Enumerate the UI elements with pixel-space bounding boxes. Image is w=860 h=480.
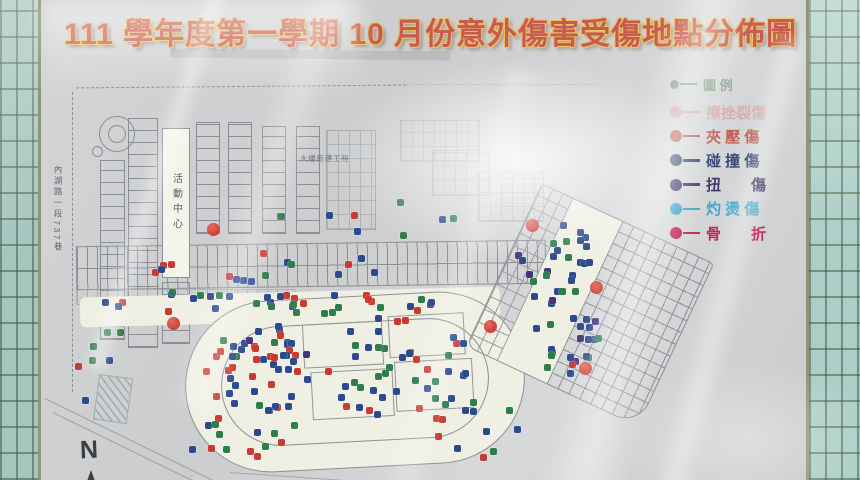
injury-dot-b [115,303,122,310]
injury-dot-b [229,353,236,360]
injury-dot-b [288,393,295,400]
injury-dot-b [358,255,365,262]
legend-line [683,135,700,138]
injury-dot-b [158,266,165,273]
injury-dot-b [483,428,490,435]
injury-dot-b [338,394,345,401]
injury-dot-b [277,293,284,300]
injury-dot-b [227,375,234,382]
injury-dot-g [335,304,342,311]
injury-dot-b [374,411,381,418]
injury-dot-r [325,368,332,375]
injury-dot-b [232,382,239,389]
legend-line [683,183,700,186]
injury-dot-b [248,278,255,285]
injury-dot-b [577,323,584,330]
injury-dot-g [445,352,452,359]
injury-dot-b [254,429,261,436]
classroom-strip [228,122,252,234]
injury-dot-b [275,366,282,373]
legend: 圖 例 擦挫裂傷夾 壓 傷碰 撞 傷扭 傷灼 燙 傷骨 折 [670,70,810,250]
legend-color-dot-icon [670,179,682,191]
large-red-marker [579,362,592,375]
injury-dot-g [565,254,572,261]
injury-dot-b [371,269,378,276]
injury-dot-b [326,212,333,219]
injury-dot-r [278,439,285,446]
injury-dot-g [89,357,96,364]
injury-dot-r [226,273,233,280]
injury-dot-r [366,407,373,414]
injury-dot-p [526,271,533,278]
legend-item-label: 灼 燙 傷 [706,198,759,219]
campus-boundary-top-faint [406,84,596,85]
injury-dot-g [216,431,223,438]
injury-dot-b [567,370,574,377]
legend-item-label: 擦挫裂傷 [706,102,766,123]
injury-dot-g [432,378,439,385]
photo-of-campus-injury-map-poster: 111 學年度第一學期 10 月份意外傷害受傷地點分佈圖 活動中心 大樓新建工程 [0,0,860,480]
injury-dot-b [450,334,457,341]
injury-dot-b [531,293,538,300]
injury-dot-r [343,403,350,410]
legend-item-label: 扭 傷 [706,174,766,195]
injury-dot-b [406,350,413,357]
legend-header: 圖 例 [670,76,733,92]
injury-dot-g [256,402,263,409]
injury-dot-b [231,400,238,407]
injury-dot-r [217,348,224,355]
injury-dot-g [90,343,97,350]
injury-dot-g [104,329,111,336]
legend-line [683,111,700,114]
injury-dot-r [414,307,421,314]
street-name-label: 內湖路一段737巷 [50,165,63,314]
injury-dot-b [260,356,267,363]
legend-item: 碰 撞 傷 [670,152,759,168]
injury-dot-g [357,384,364,391]
large-red-marker [590,281,603,294]
injury-dot-b [550,253,557,260]
legend-item-label: 夾 壓 傷 [706,126,759,147]
injury-dot-b [428,299,435,306]
plaza-circle-small [92,146,103,157]
injury-dot-r [569,361,576,368]
large-red-marker [484,320,497,333]
injury-dot-b [375,328,382,335]
injury-dot-b [424,385,431,392]
injury-dot-b [356,404,363,411]
injury-dot-b [583,243,590,250]
injury-dot-b [290,358,297,365]
injury-dot-b [285,403,292,410]
injury-dot-b [189,446,196,453]
injury-dot-r [480,454,487,461]
injury-dot-b [280,352,287,359]
injury-dot-b [533,325,540,332]
injury-dot-b [375,315,382,322]
injury-dot-b [439,216,446,223]
injury-dot-g [595,335,602,342]
injury-dot-b [470,408,477,415]
injury-dot-b [568,277,575,284]
injury-dot-r [165,308,172,315]
injury-dot-r [271,354,278,361]
injury-dot-g [559,288,566,295]
injury-dot-r [351,212,358,219]
main-classroom-row [76,240,547,291]
injury-dot-g [547,321,554,328]
injury-dot-r [424,366,431,373]
legend-color-dot-icon [670,130,682,142]
injury-dot-g [382,370,389,377]
legend-item: 夾 壓 傷 [670,128,759,144]
injury-dot-g [212,421,219,428]
injury-dot-p [592,318,599,325]
injury-dot-b [335,271,342,278]
injury-dot-g [412,377,419,384]
injury-dot-g [490,448,497,455]
ramp-hatched [93,374,133,424]
injury-dot-b [586,324,593,331]
injury-dot-p [577,335,584,342]
injury-dot-r [268,381,275,388]
injury-dot-g [271,430,278,437]
injury-dot-b [560,222,567,229]
injury-dot-b [230,343,237,350]
injury-dot-r [294,368,301,375]
injury-dot-g [550,240,557,247]
injury-dot-b [352,353,359,360]
injury-dot-r [247,448,254,455]
injury-dot-b [207,293,214,300]
injury-dot-b [106,357,113,364]
injury-dot-r [75,363,82,370]
legend-color-dot-icon [670,154,682,166]
injury-dot-g [253,300,260,307]
injury-dot-b [445,368,452,375]
injury-dot-b [233,276,240,283]
injury-dot-r [416,405,423,412]
injury-dot-g [169,289,176,296]
legend-item-label: 骨 折 [706,223,766,244]
legend-line [683,232,700,235]
injury-dot-r [254,453,261,460]
injury-dot-b [205,422,212,429]
construction-note: 大樓新建工程 [300,152,350,163]
injury-dot-g [262,443,269,450]
injury-dot-r [203,368,210,375]
injury-dot-r [413,356,420,363]
injury-dot-b [342,383,349,390]
legend-color-dot-icon [670,106,682,118]
injury-dot-g [400,232,407,239]
injury-dot-g [293,309,300,316]
injury-dot-b [462,370,469,377]
injury-dot-g [548,352,555,359]
injury-dot-b [331,292,338,299]
injury-dot-b [460,340,467,347]
injury-dot-r [253,356,260,363]
injury-dot-g [375,344,382,351]
injury-dot-b [264,294,271,301]
injury-dot-b [570,315,577,322]
injury-dot-g [397,199,404,206]
injury-dot-b [586,259,593,266]
injury-dot-b [275,323,282,330]
injury-dot-b [347,328,354,335]
injury-dot-g [321,310,328,317]
injury-dot-b [585,336,592,343]
injury-dot-r [402,317,409,324]
campus-boundary-left [72,92,73,392]
north-label: N [79,436,98,466]
injury-dot-p [246,337,253,344]
legend-header-line [680,83,697,86]
injury-dot-b [567,354,574,361]
injury-dot-r [208,445,215,452]
injury-dot-r [365,296,372,303]
injury-dot-r [345,261,352,268]
classroom-strip [196,122,220,234]
injury-dot-b [226,293,233,300]
injury-dot-r [439,416,446,423]
injury-dot-b [583,316,590,323]
injury-dot-g [277,213,284,220]
poster-title: 111 學年度第一學期 10 月份意外傷害受傷地點分佈圖 [64,9,804,53]
injury-dot-b [288,340,295,347]
injury-dot-g [377,304,384,311]
injury-dot-g [220,337,227,344]
injury-dot-g [197,292,204,299]
injury-dot-b [354,228,361,235]
injury-dot-b [102,299,109,306]
legend-item: 骨 折 [670,225,766,241]
injury-dot-b [514,426,521,433]
injury-dot-g [351,379,358,386]
injury-dot-r [213,393,220,400]
injury-dot-g [262,272,269,279]
injury-dot-g [290,301,297,308]
injury-dot-r [252,345,259,352]
injury-dot-b [370,387,377,394]
injury-dot-g [117,329,124,336]
legend-item: 灼 燙 傷 [670,201,759,217]
injury-dot-b [304,376,311,383]
injury-dot-r [394,318,401,325]
injury-dot-b [251,388,258,395]
injury-dot-g [442,401,449,408]
injury-dot-b [285,366,292,373]
injury-dot-b [379,394,386,401]
legend-line [683,208,700,211]
injury-dot-g [216,292,223,299]
injury-dot-g [450,215,457,222]
injury-dot-b [226,390,233,397]
plaza-circle-inner [108,125,126,143]
injury-dot-g [288,261,295,268]
injury-dot-b [82,397,89,404]
legend-item: 擦挫裂傷 [670,104,766,120]
injury-dot-b [448,395,455,402]
activity-center-label: 活動中心 [169,173,184,233]
injury-dot-g [432,395,439,402]
injury-dot-b [519,257,526,264]
injury-dot-g [506,407,513,414]
injury-dot-r [260,250,267,257]
large-red-marker [526,219,539,232]
injury-dot-b [365,344,372,351]
injury-dot-b [399,354,406,361]
injury-dot-b [454,445,461,452]
injury-dot-b [212,305,219,312]
injury-dot-r [283,292,290,299]
large-red-marker [167,317,180,330]
injury-dot-p [303,351,310,358]
legend-item-label: 碰 撞 傷 [706,150,759,171]
legend-line [683,159,700,162]
injury-dot-r [300,300,307,307]
injury-dot-r [249,373,256,380]
injury-dot-b [583,353,590,360]
injury-dot-g [470,399,477,406]
legend-color-dot-icon [670,227,682,239]
legend-item: 扭 傷 [670,177,766,193]
legend-color-dot-icon [670,203,682,215]
injury-dot-r [229,364,236,371]
large-red-marker [207,223,220,236]
injury-dot-b [255,328,262,335]
injury-dot-g [271,339,278,346]
injury-dot-g [418,296,425,303]
injury-dot-b [190,295,197,302]
injury-dot-r [277,332,284,339]
north-arrow-icon [86,470,96,480]
injury-dot-g [563,238,570,245]
injury-dot-b [462,407,469,414]
injury-dot-r [168,261,175,268]
injury-dot-p [549,297,556,304]
activity-center-building: 活動中心 [162,128,190,278]
injury-dot-g [572,288,579,295]
injury-dot-b [240,277,247,284]
injury-dot-b [272,403,279,410]
injury-dot-b [265,407,272,414]
injury-dot-g [544,364,551,371]
injury-dot-b [393,388,400,395]
injury-dot-g [543,272,550,279]
legend-header-dot-icon [670,80,679,89]
legend-header-label: 圖 例 [703,75,733,94]
injury-dot-g [291,422,298,429]
injury-dot-g [530,278,537,285]
injury-dot-g [268,303,275,310]
injury-dot-g [223,446,230,453]
injury-dot-r [435,433,442,440]
injury-dot-b [577,229,584,236]
classroom-strip [296,126,320,234]
injury-dot-g [352,342,359,349]
